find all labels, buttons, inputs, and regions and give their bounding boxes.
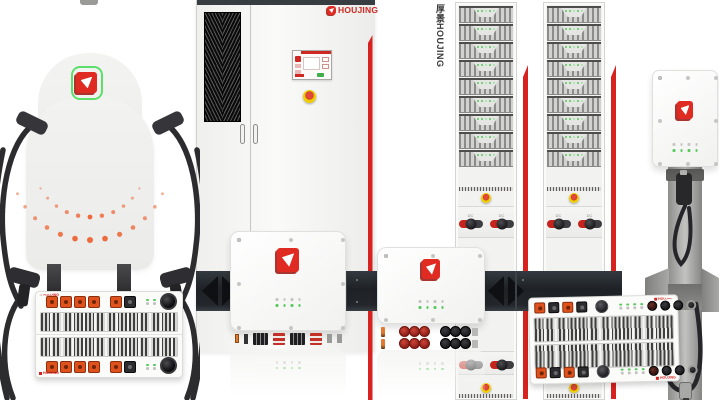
ventilation-grille xyxy=(204,12,241,122)
vent-slats xyxy=(459,187,513,191)
breaker-panel: DC DC xyxy=(458,206,514,238)
status-leds xyxy=(619,303,644,310)
orange-terminal xyxy=(235,334,239,343)
dc-output-port xyxy=(564,367,575,378)
module-handle-notch xyxy=(561,62,587,71)
rack-module xyxy=(547,60,601,77)
status-leds xyxy=(419,300,444,303)
comm-port xyxy=(578,366,589,377)
status-leds xyxy=(276,304,301,307)
module-handle-notch xyxy=(473,98,499,107)
connector-row xyxy=(381,338,481,349)
connector-row xyxy=(381,326,481,337)
door-handle xyxy=(253,124,258,144)
dc-output-port xyxy=(88,361,100,373)
indicator-dot-arcs xyxy=(15,175,165,245)
power-module-2u: HOUJING xyxy=(35,291,183,378)
module-handle-notch xyxy=(473,116,499,125)
terminal xyxy=(327,334,332,343)
rotary-switch-handle xyxy=(459,220,483,228)
striped-terminal-block xyxy=(253,333,268,345)
module-handle-notch xyxy=(561,134,587,143)
terminal xyxy=(472,340,478,348)
rack-module xyxy=(547,78,601,95)
round-connector xyxy=(649,365,659,375)
brand-logo: HOUJING xyxy=(327,6,378,15)
module-handle-notch xyxy=(561,152,587,161)
rack-module xyxy=(459,150,513,167)
wall-charger-compact xyxy=(377,247,485,400)
module-led-strip xyxy=(477,154,479,156)
screw xyxy=(237,238,241,242)
round-connector xyxy=(688,364,698,374)
power-module-unit: HOUJING xyxy=(36,292,182,334)
screw xyxy=(384,254,388,258)
vent-slats xyxy=(547,394,601,398)
round-connector xyxy=(686,299,696,309)
rack-module xyxy=(547,132,601,149)
module-handle-notch xyxy=(473,8,499,17)
dc-output-port xyxy=(60,361,72,373)
rack-module xyxy=(547,6,601,23)
rack-module xyxy=(547,96,601,113)
emergency-stop-button xyxy=(481,193,491,203)
module-handle-notch xyxy=(473,80,499,89)
dc-output-port xyxy=(88,296,100,308)
comm-port xyxy=(548,302,559,313)
round-connector xyxy=(675,365,685,375)
dc-output-port xyxy=(74,296,86,308)
dc-output-port xyxy=(562,302,573,313)
emergency-stop-button xyxy=(569,193,579,203)
module-handle-notch xyxy=(473,44,499,53)
module-led-strip xyxy=(565,118,567,120)
striped-terminal-block xyxy=(290,333,305,345)
round-connector xyxy=(647,300,657,310)
brand-logo-icon xyxy=(327,6,336,15)
module-handle-notch xyxy=(561,98,587,107)
rotary-knob xyxy=(595,300,608,313)
rack-module xyxy=(547,42,601,59)
comm-port xyxy=(124,361,136,373)
dc-output-port xyxy=(74,361,86,373)
rack-module xyxy=(459,6,513,23)
status-leds xyxy=(673,143,698,146)
module-led-strip xyxy=(565,28,567,30)
module-led-strip xyxy=(477,46,479,48)
dc-breaker-switch: DC xyxy=(459,214,483,230)
rack-module xyxy=(459,96,513,113)
rotary-switch-handle xyxy=(490,361,514,369)
terminal xyxy=(472,328,478,336)
rack-module xyxy=(459,78,513,95)
comm-port xyxy=(550,367,561,378)
module-handle-notch xyxy=(561,116,587,125)
comm-port xyxy=(124,296,136,308)
brand-logo: HOUJING xyxy=(656,375,676,379)
module-handle-notch xyxy=(473,62,499,71)
terminal xyxy=(337,334,342,343)
module-led-strip xyxy=(477,100,479,102)
status-leds xyxy=(419,306,444,309)
status-leds xyxy=(621,368,646,375)
dc-output-port xyxy=(536,367,547,378)
status-leds xyxy=(276,298,301,301)
module-led-strip xyxy=(565,136,567,138)
round-connector xyxy=(673,300,683,310)
module-led-strip xyxy=(477,10,479,12)
dc-breaker-switch: DC xyxy=(578,214,602,230)
red-accent-stripe xyxy=(523,65,528,399)
round-power-connector xyxy=(160,293,177,310)
rack-module xyxy=(459,114,513,131)
vent-grille xyxy=(40,312,178,332)
module-handle-notch xyxy=(473,134,499,143)
emergency-stop-button xyxy=(569,383,579,393)
round-power-connector xyxy=(160,357,177,374)
red-terminal-block xyxy=(273,333,285,345)
charger-body xyxy=(377,247,485,324)
connector-row xyxy=(36,292,182,309)
rack-brand-label: 厚景HOUJING xyxy=(434,4,447,68)
dc-breaker-switch xyxy=(490,355,514,371)
comm-port xyxy=(576,301,587,312)
rotary-knob xyxy=(597,365,610,378)
module-handle-notch xyxy=(473,152,499,161)
rotary-switch-handle xyxy=(490,220,514,228)
brand-logo-icon xyxy=(422,259,440,279)
module-led-strip xyxy=(477,82,479,84)
module-led-strip xyxy=(477,136,479,138)
status-leds xyxy=(673,149,698,152)
door-handle xyxy=(240,124,245,144)
dc-output-port xyxy=(60,296,72,308)
brand-logo-icon xyxy=(677,101,693,119)
emergency-stop-button xyxy=(303,90,316,103)
module-handle-notch xyxy=(561,44,587,53)
vent-slats xyxy=(547,187,601,191)
vent-grille xyxy=(533,314,674,342)
dc-output-port xyxy=(110,296,122,308)
rack-module xyxy=(547,114,601,131)
product-showcase: HOUJING 厚景HOUJING xyxy=(0,0,719,400)
module-handle-notch xyxy=(561,80,587,89)
breaker-panel: DC DC xyxy=(546,206,602,238)
rotary-switch-handle xyxy=(547,220,571,228)
wallbox-body xyxy=(652,70,718,167)
module-led-strip xyxy=(565,154,567,156)
red-accent-stripe xyxy=(368,33,373,400)
power-module-unit: HOUJING xyxy=(36,334,182,376)
module-handle-notch xyxy=(561,26,587,35)
rack-module xyxy=(459,24,513,41)
module-led-strip xyxy=(565,10,567,12)
wall-charger-large xyxy=(230,231,346,400)
brand-logo xyxy=(71,66,103,100)
dc-breaker-switch: DC xyxy=(547,214,571,230)
module-handle-notch xyxy=(561,8,587,17)
module-led-strip xyxy=(477,64,479,66)
brand-logo-text: HOUJING xyxy=(338,6,378,15)
brand-logo-icon xyxy=(76,72,97,93)
rack-module xyxy=(459,60,513,77)
rack-module xyxy=(547,24,601,41)
brand-logo: HOUJING xyxy=(39,371,59,375)
orange-terminal xyxy=(381,327,385,337)
charger-body xyxy=(230,231,346,331)
power-module-1u: HOUJING xyxy=(528,294,680,384)
brand-logo-icon xyxy=(277,248,299,272)
rack-module xyxy=(459,132,513,149)
connector-row xyxy=(529,295,677,315)
dc-output-port xyxy=(46,296,58,308)
module-led-strip xyxy=(565,64,567,66)
vent-grille xyxy=(40,337,178,357)
rack-module-stack xyxy=(547,6,601,186)
terminal xyxy=(244,334,248,344)
rack-module-stack xyxy=(459,6,513,186)
module-handle-notch xyxy=(473,26,499,35)
module-led-strip xyxy=(565,82,567,84)
module-led-strip xyxy=(477,118,479,120)
rack-module xyxy=(547,150,601,167)
floor-reflection xyxy=(230,349,346,399)
screw xyxy=(658,76,662,80)
module-led-strip xyxy=(477,28,479,30)
round-connector xyxy=(660,300,670,310)
rotary-switch-handle xyxy=(578,220,602,228)
orange-terminal xyxy=(381,339,385,349)
round-connector xyxy=(662,365,672,375)
terminal-block-row xyxy=(235,331,341,346)
connector-rows xyxy=(381,326,481,350)
module-led-strip xyxy=(565,46,567,48)
floor-reflection xyxy=(377,350,485,398)
red-terminal-block xyxy=(310,333,322,345)
dc-output-port xyxy=(110,361,122,373)
hmi-display xyxy=(292,50,332,80)
dc-output-port xyxy=(534,302,545,313)
rack-module xyxy=(459,42,513,59)
cable-plug xyxy=(679,382,692,400)
dc-breaker-switch: DC xyxy=(490,214,514,230)
module-led-strip xyxy=(565,100,567,102)
